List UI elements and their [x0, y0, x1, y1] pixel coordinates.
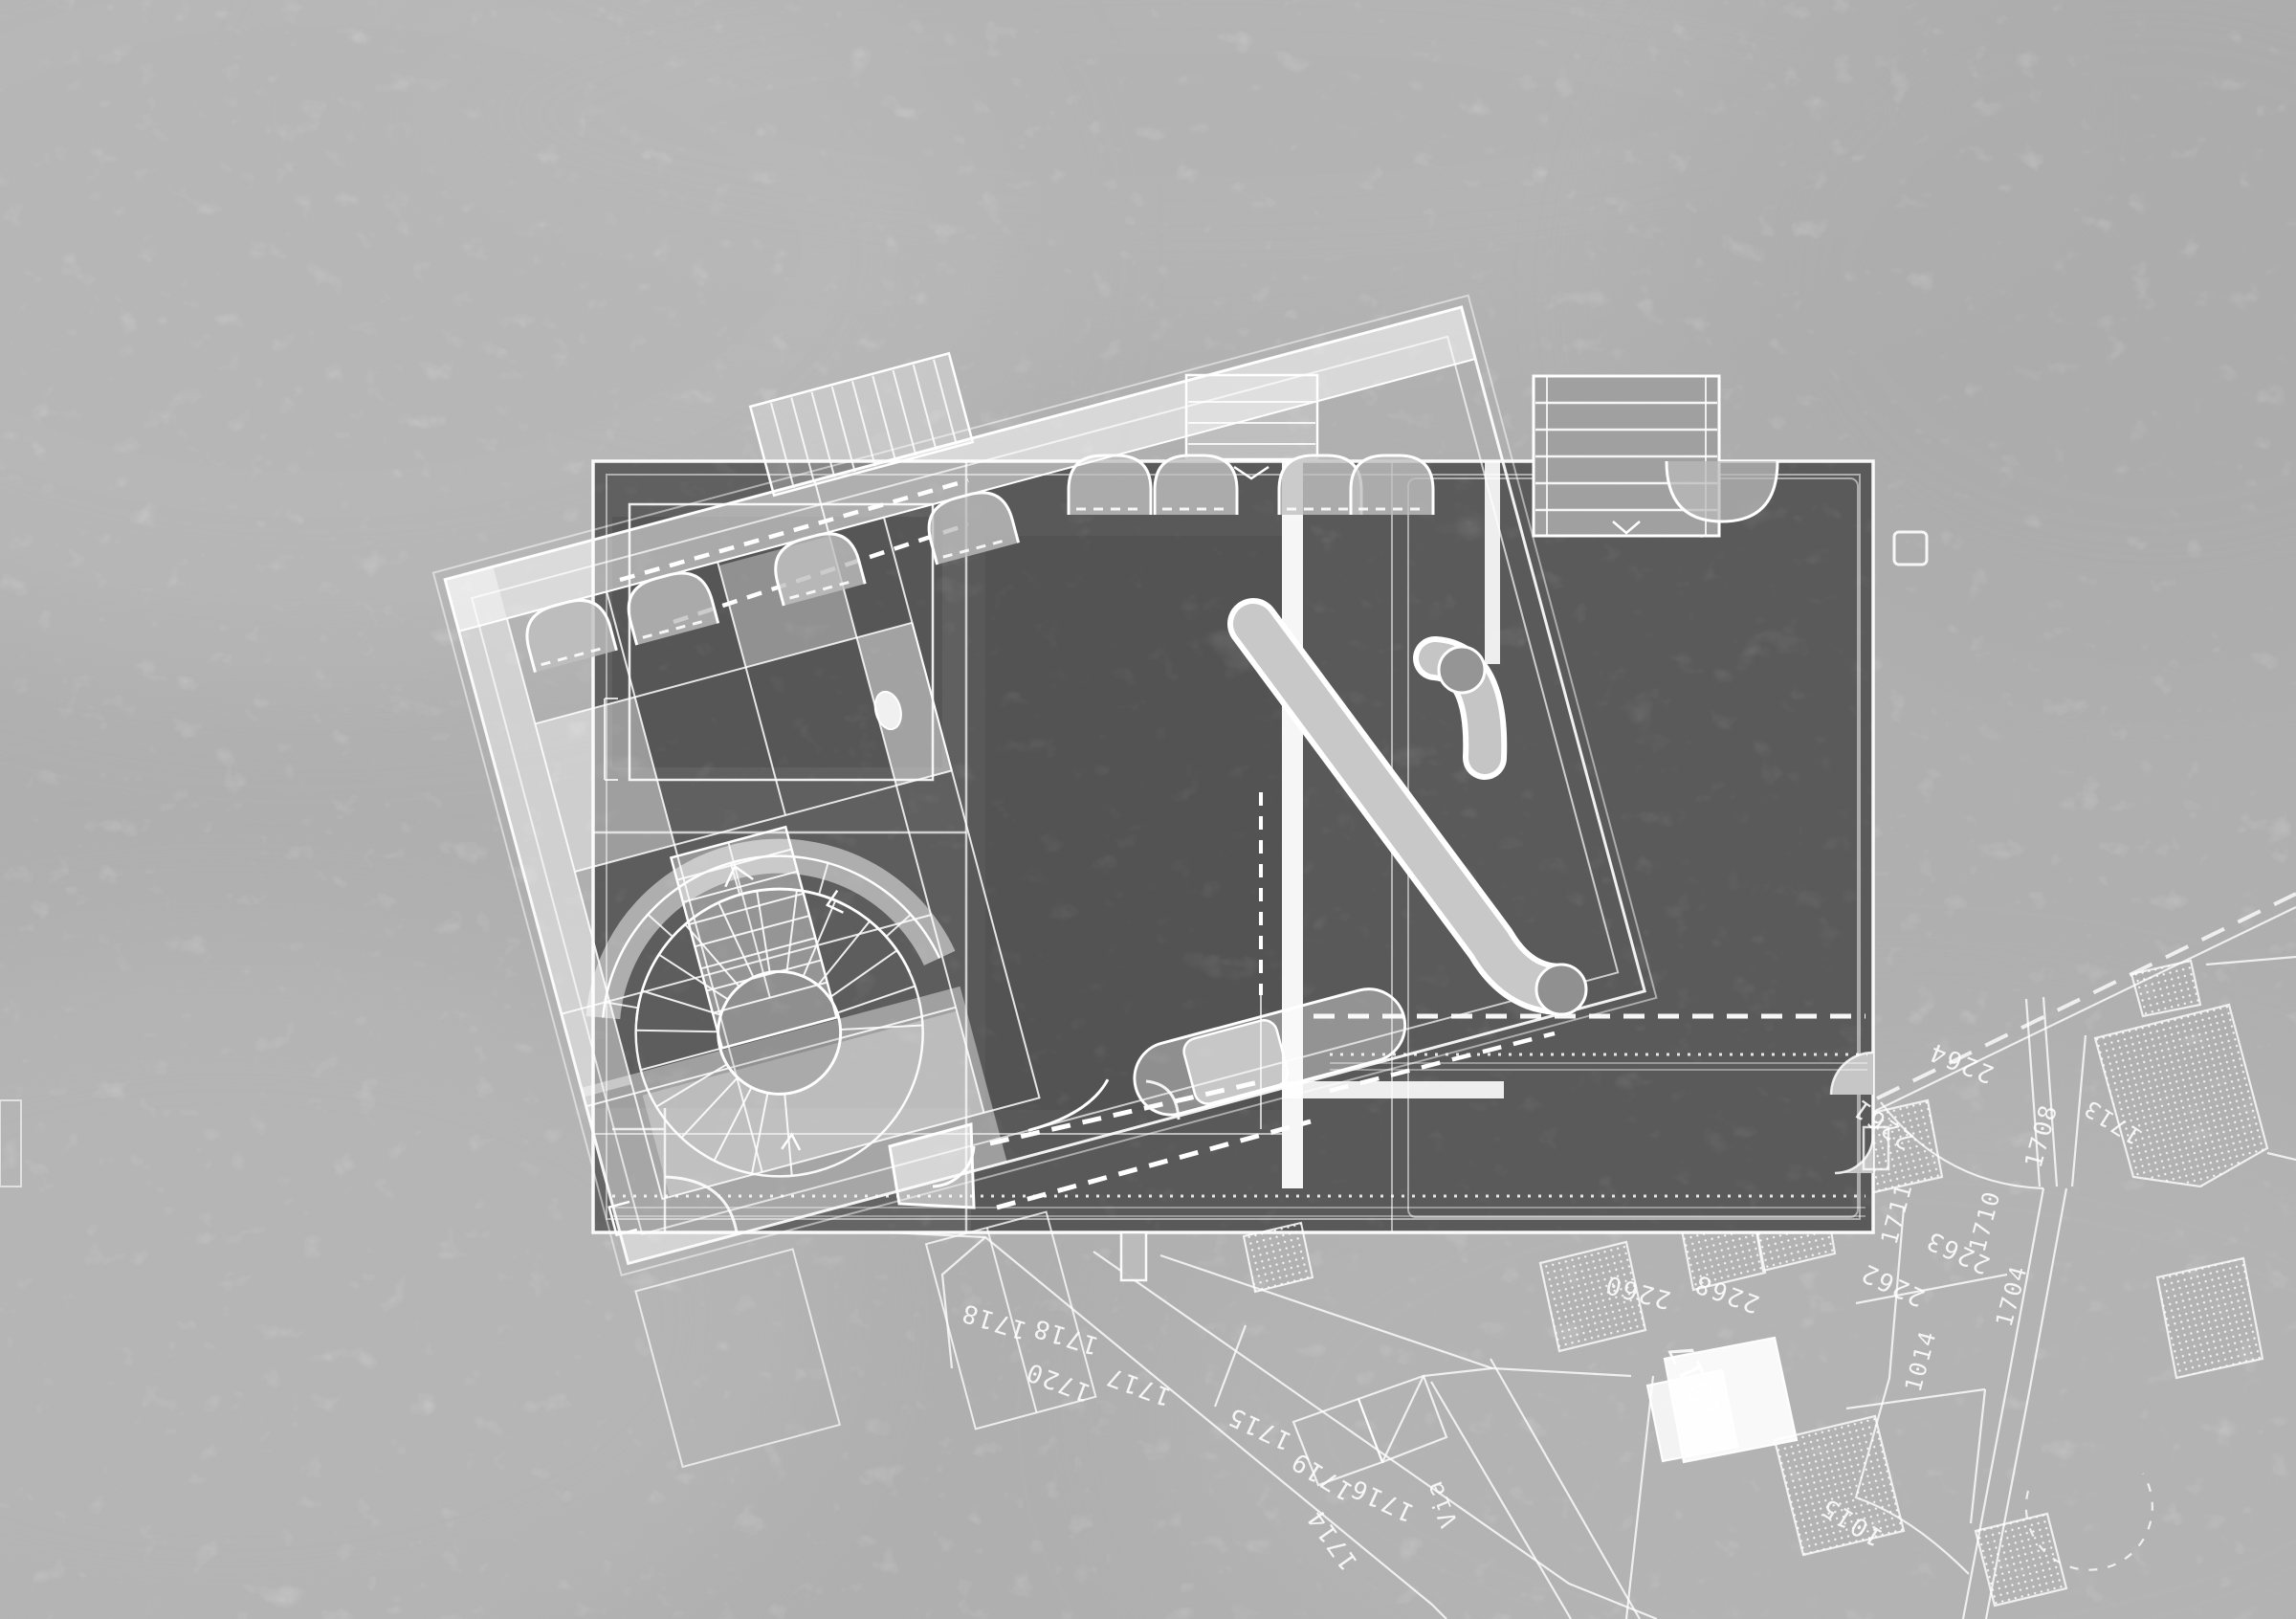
site-plan-drawing: 17181718172017171715171917161714Via22642…: [0, 0, 2296, 1619]
top-grain: [0, 0, 2296, 1619]
architectural-drawing-page: 17181718172017171715171917161714Via22642…: [0, 0, 2296, 1619]
